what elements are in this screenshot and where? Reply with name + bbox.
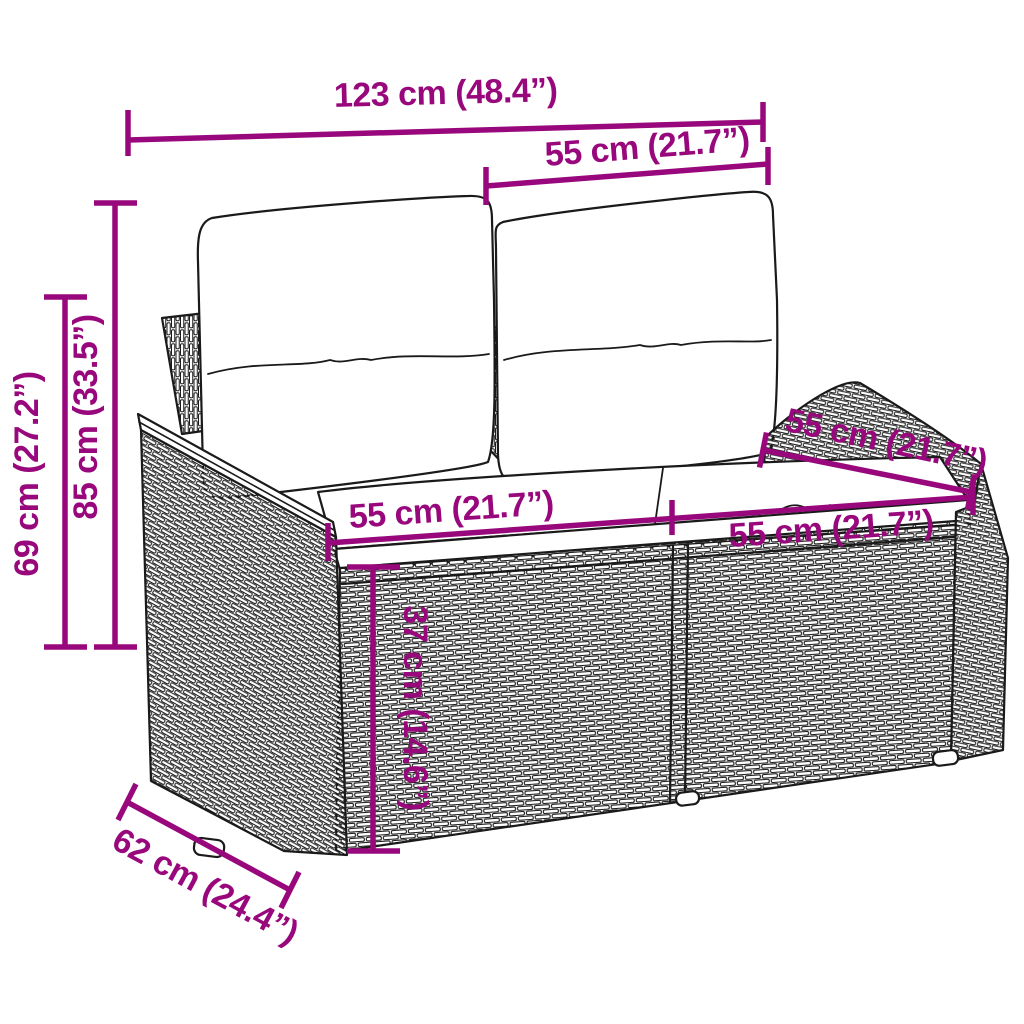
- left-armrest-body: [141, 430, 347, 855]
- dim-label-seat-height: 37 cm (14.6”): [396, 605, 434, 810]
- dimension-diagram: 123 cm (48.4”) 55 cm (21.7”) 85 cm (33.5…: [0, 0, 1024, 1024]
- back-cushion-right: [496, 192, 778, 482]
- dim-label-total-height: 85 cm (33.5”): [67, 314, 105, 519]
- dim-tick: [118, 784, 136, 820]
- dim-total-height: 85 cm (33.5”): [67, 203, 137, 647]
- dim-backrest-width: 55 cm (21.7”): [486, 120, 768, 205]
- dim-label-armrest-height: 69 cm (27.2”): [8, 371, 46, 576]
- sofa-foot-center: [675, 791, 699, 807]
- back-cushion-left: [198, 196, 495, 498]
- dimension-diagram-canvas: 123 cm (48.4”) 55 cm (21.7”) 85 cm (33.5…: [0, 0, 1024, 1024]
- dim-tick: [281, 872, 299, 908]
- sofa-foot-right: [932, 749, 959, 766]
- dim-label-overall-width: 123 cm (48.4”): [333, 71, 558, 115]
